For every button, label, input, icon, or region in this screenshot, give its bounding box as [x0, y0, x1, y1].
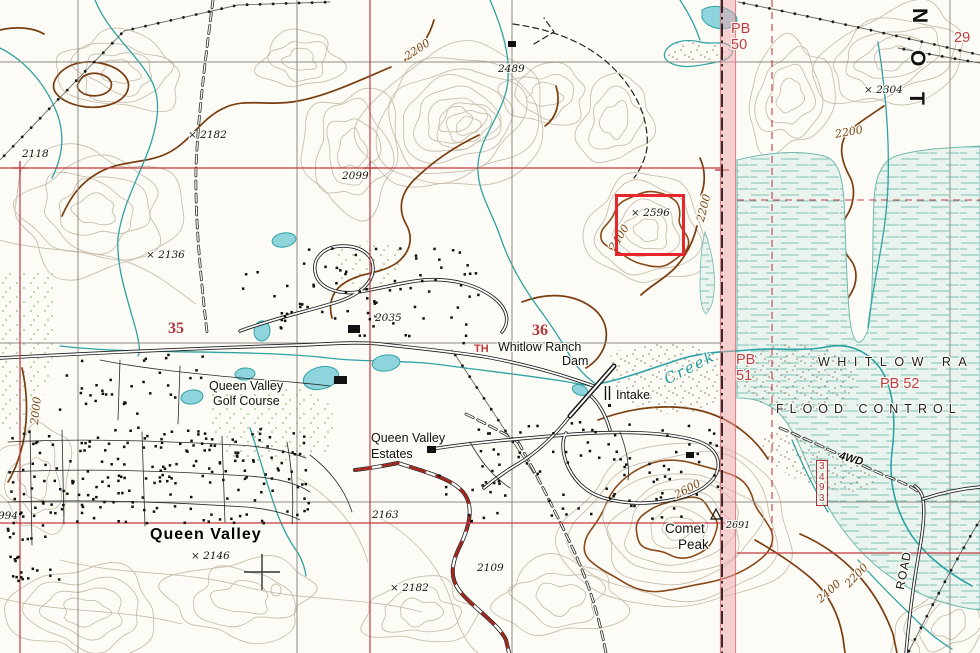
town-name: Queen Valley	[150, 526, 262, 544]
section-number-35: 35	[168, 320, 184, 338]
spot-elevation-2163: 2163	[372, 509, 399, 521]
spot-elevation-2489: 2489	[498, 63, 525, 75]
intake-label: Intake	[616, 388, 650, 402]
spot-elevation-2691: 2691	[726, 520, 750, 531]
survey-label-pb50: PB 50	[731, 22, 750, 53]
map-canvas	[0, 0, 980, 653]
survey-label-pb52: PB 52	[880, 377, 920, 393]
spot-elevation-994: 994	[0, 510, 18, 522]
highlight-box[interactable]	[615, 194, 685, 256]
golf-course-name-line2: Golf Course	[213, 394, 280, 408]
estates-name-line1: Queen Valley	[371, 431, 445, 445]
benchmark-3493: 3 4 9 3	[816, 460, 828, 506]
golf-course-name-line1: Queen Valley	[209, 379, 283, 393]
section-number-29: 29	[954, 31, 970, 47]
forest-name-letter-o: O	[905, 50, 929, 66]
forest-name-letter-t: T	[904, 92, 928, 105]
dam-name-line1: Whitlow Ranch	[498, 340, 581, 354]
estates-name-line2: Estates	[371, 447, 413, 461]
spot-elevation-2304: × 2304	[864, 84, 903, 96]
survey-label-pb51: PB 51	[736, 353, 755, 384]
spot-elevation-2035: 2035	[375, 312, 402, 324]
flood-area-name-line2: FLOOD CONTROL	[776, 402, 962, 416]
spot-elevation-2118: 2118	[22, 148, 49, 160]
forest-name-letter-n: N	[907, 8, 931, 23]
boundary-band	[720, 0, 736, 653]
spot-elevation-2182-nw: × 2182	[188, 129, 227, 141]
spot-elevation-2109: 2109	[477, 562, 504, 574]
flood-area-name-line1: WHITLOW RA	[818, 355, 974, 369]
topo-map: 2118 × 2182 2200 2489 2099 × 2304 2200 P…	[0, 0, 980, 653]
comet-peak-line1: Comet	[665, 521, 705, 536]
spot-elevation-2146: × 2146	[191, 550, 230, 562]
spot-elevation-2099: 2099	[342, 170, 369, 182]
comet-peak-line2: Peak	[678, 537, 709, 552]
dam-name-line2: Dam	[562, 354, 588, 368]
section-number-36: 36	[532, 322, 548, 340]
trailhead-label: TH	[474, 343, 489, 355]
spot-elevation-2136: × 2136	[146, 249, 185, 261]
spot-elevation-2182-s: × 2182	[390, 582, 429, 594]
